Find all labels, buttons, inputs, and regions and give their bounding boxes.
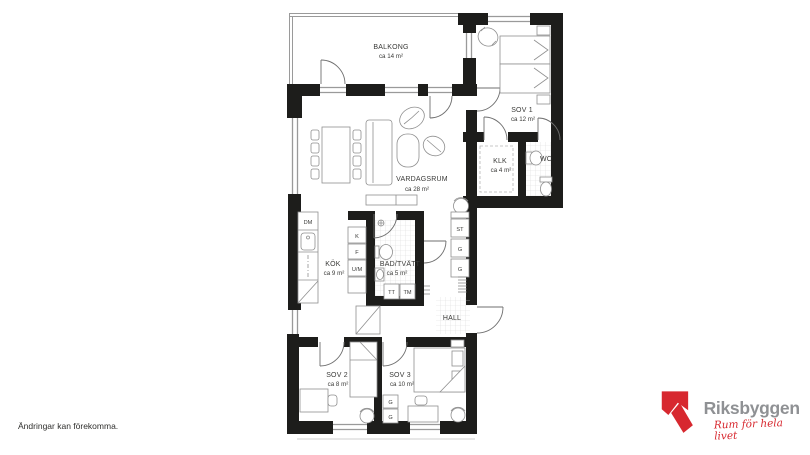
dining-table [311,127,361,183]
area-sov1: ca 12 m² [511,116,535,123]
floorplan-page: BALKONG ca 14 m² SOV 1 ca 12 m² KLK ca 4… [0,0,810,455]
area-sov2: ca 8 m² [328,381,349,388]
sov3-desk [408,396,438,422]
area-kok: ca 9 m² [324,270,345,277]
label-cleaning: ST [456,227,464,233]
sov1-double-bed [500,26,550,104]
corridor-cabinet [356,306,380,334]
riksbyggen-logo-icon [658,388,698,440]
brand-name: Riksbyggen [704,400,803,418]
brand-tagline: Rum för hela livet [713,417,803,441]
sov3-chair [451,407,465,422]
label-balkong: BALKONG [373,44,408,51]
floor-plan: BALKONG ca 14 m² SOV 1 ca 12 m² KLK ca 4… [0,0,810,455]
hall-closets [424,212,469,294]
kitchen-sink [301,233,315,250]
label-oven-micro: U/M [352,267,363,273]
wc-toilet [540,177,552,196]
label-sov1: SOV 1 [511,107,533,114]
brand-logo: Riksbyggen Rum för hela livet [658,388,803,440]
sov2-bed [350,342,377,397]
label-fridge: K [355,234,359,240]
bath-toilet [380,245,393,260]
label-wc: WC [540,156,552,163]
label-vardagsrum: VARDAGSRUM [396,176,448,183]
area-balkong: ca 14 m² [379,53,403,60]
label-dryer: TT [388,290,395,296]
label-klk: KLK [493,158,507,165]
label-wardrobe-2: G [458,267,462,273]
sov2-desk [300,389,337,412]
label-sov3-wardrobe-2: G [388,415,392,421]
sofa [366,120,392,185]
sideboard [366,195,417,205]
label-sov3-wardrobe-1: G [388,400,392,406]
label-sov2: SOV 2 [326,372,348,379]
armchairs [396,103,448,167]
sov3-bed [414,340,465,392]
toilet-tank [375,246,379,258]
area-sov3: ca 10 m² [390,381,414,388]
label-washer: TM [403,290,411,296]
sov1-chair [476,25,501,49]
area-bad: ca 5 m² [387,270,408,277]
label-dishwasher: DM [304,220,313,226]
label-freezer: F [355,250,359,256]
label-bad: BAD/TVÄTT [380,260,421,268]
sov2-chair [360,408,374,423]
label-wardrobe-1: G [458,247,462,253]
label-kok: KÖK [325,260,341,268]
disclaimer-text: Ändringar kan förekomma. [18,421,118,431]
label-sov3: SOV 3 [389,372,411,379]
area-vardagsrum: ca 28 m² [405,186,429,193]
label-hall: HALL [443,315,461,322]
area-klk: ca 4 m² [491,167,512,174]
